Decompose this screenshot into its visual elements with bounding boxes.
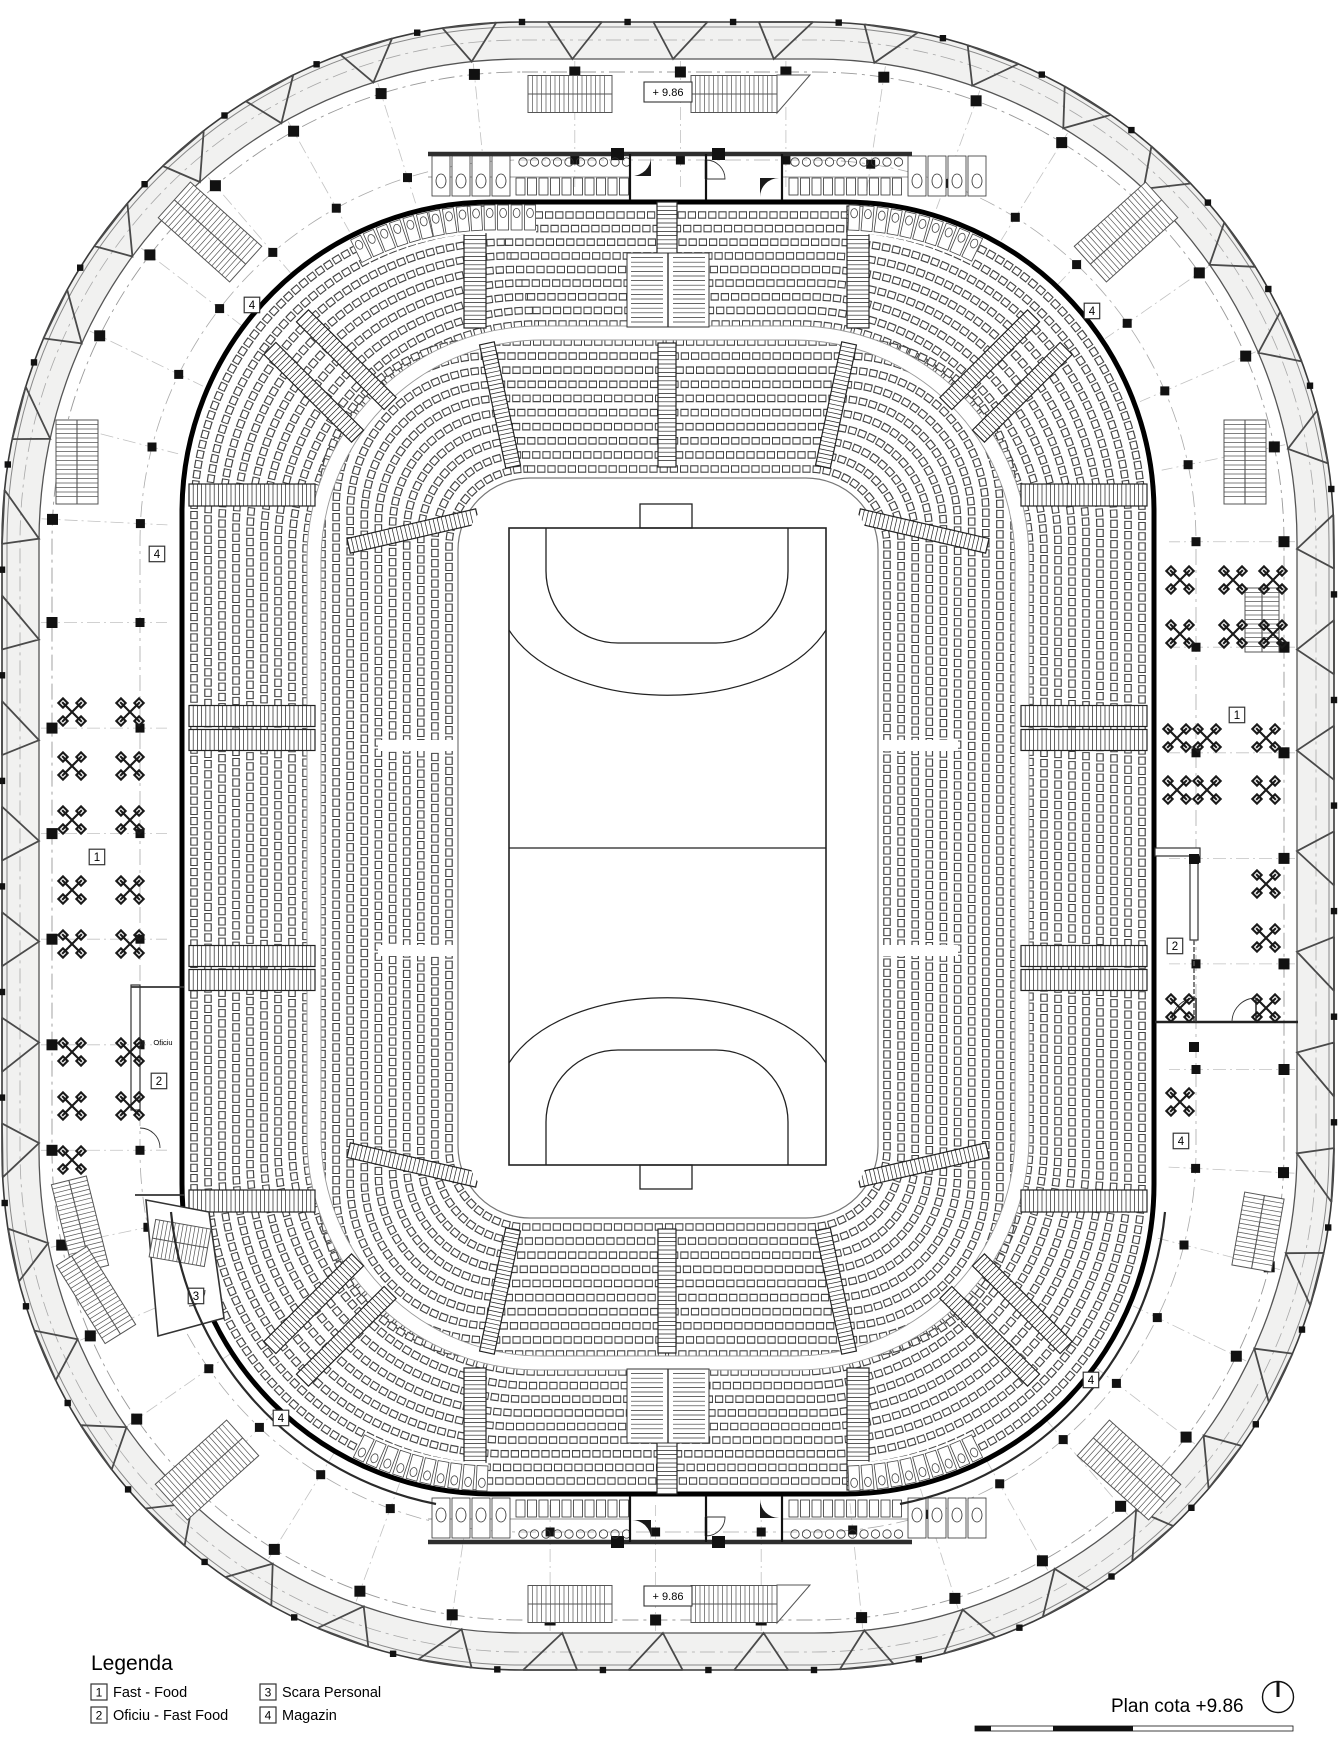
svg-text:4: 4: [249, 300, 256, 312]
svg-text:+ 9.86: + 9.86: [653, 87, 684, 99]
svg-text:2: 2: [96, 1709, 103, 1723]
svg-text:2: 2: [1172, 941, 1178, 953]
svg-text:1: 1: [94, 852, 100, 864]
svg-text:Scara Personal: Scara Personal: [282, 1685, 381, 1701]
svg-text:Oficiu: Oficiu: [153, 1038, 172, 1047]
svg-text:4: 4: [265, 1709, 272, 1723]
svg-text:1: 1: [96, 1686, 103, 1700]
svg-text:4: 4: [1089, 306, 1096, 318]
svg-text:Oficiu - Fast Food: Oficiu - Fast Food: [113, 1708, 228, 1724]
svg-text:3: 3: [193, 1291, 199, 1303]
svg-text:3: 3: [265, 1686, 272, 1700]
svg-text:4: 4: [278, 1413, 285, 1425]
svg-text:+ 9.86: + 9.86: [653, 1591, 684, 1603]
svg-text:4: 4: [1178, 1136, 1185, 1148]
svg-text:1: 1: [1234, 710, 1240, 722]
svg-text:2: 2: [156, 1076, 162, 1088]
svg-text:Magazin: Magazin: [282, 1708, 337, 1724]
svg-text:4: 4: [1088, 1375, 1095, 1387]
svg-text:Legenda: Legenda: [91, 1652, 173, 1675]
svg-text:Fast - Food: Fast - Food: [113, 1685, 187, 1701]
svg-text:4: 4: [154, 549, 161, 561]
svg-text:Plan cota +9.86: Plan cota +9.86: [1111, 1696, 1244, 1717]
